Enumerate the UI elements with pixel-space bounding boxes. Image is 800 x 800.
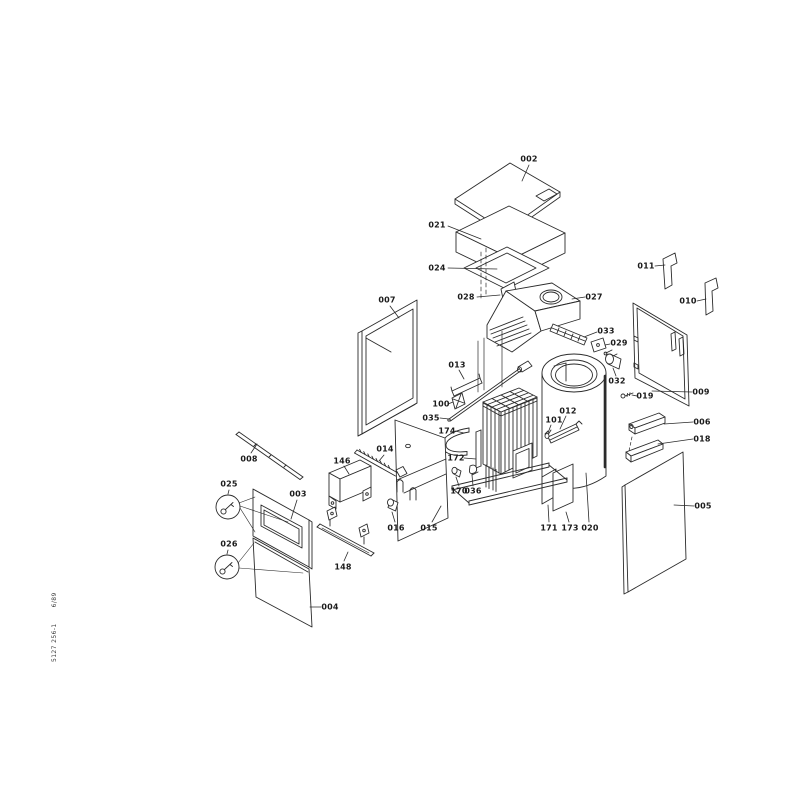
part-label-019: 019 xyxy=(636,392,653,401)
drawing-number: 5127 256-16/89 xyxy=(51,592,58,662)
part-label-171: 171 xyxy=(540,524,557,533)
part-label-146: 146 xyxy=(333,457,350,466)
exploded-parts-diagram: 0020210240280270330290320131000351741721… xyxy=(0,0,800,800)
drawing-date: 6/89 xyxy=(51,592,58,607)
part-label-035: 035 xyxy=(422,414,439,423)
drawing-number-value: 5127 256-1 xyxy=(51,623,58,662)
part-label-148: 148 xyxy=(334,563,351,572)
part-label-028: 028 xyxy=(457,293,474,302)
part-label-100: 100 xyxy=(432,400,449,409)
part-label-010: 010 xyxy=(679,297,696,306)
part-label-015: 015 xyxy=(420,524,437,533)
part-label-029: 029 xyxy=(610,339,627,348)
part-labels-layer: 0020210240280270330290320131000351741721… xyxy=(0,0,800,800)
part-label-002: 002 xyxy=(520,155,537,164)
part-label-024: 024 xyxy=(428,264,445,273)
part-label-020: 020 xyxy=(581,524,598,533)
part-label-174: 174 xyxy=(438,427,455,436)
part-label-101: 101 xyxy=(545,416,562,425)
part-label-007: 007 xyxy=(378,296,395,305)
part-label-005: 005 xyxy=(694,502,711,511)
part-label-033: 033 xyxy=(597,327,614,336)
part-label-018: 018 xyxy=(693,435,710,444)
part-label-036: 036 xyxy=(464,487,481,496)
part-label-008: 008 xyxy=(240,455,257,464)
part-label-173: 173 xyxy=(561,524,578,533)
part-label-021: 021 xyxy=(428,221,445,230)
part-label-013: 013 xyxy=(448,361,465,370)
part-label-032: 032 xyxy=(608,377,625,386)
part-label-025: 025 xyxy=(220,480,237,489)
part-label-004: 004 xyxy=(321,603,338,612)
part-label-011: 011 xyxy=(637,262,654,271)
part-label-172: 172 xyxy=(447,454,464,463)
part-label-006: 006 xyxy=(693,418,710,427)
part-label-016: 016 xyxy=(387,524,404,533)
part-label-012: 012 xyxy=(559,407,576,416)
part-label-009: 009 xyxy=(692,388,709,397)
part-label-026: 026 xyxy=(220,540,237,549)
part-label-027: 027 xyxy=(585,293,602,302)
part-label-003: 003 xyxy=(289,490,306,499)
part-label-014: 014 xyxy=(376,445,393,454)
